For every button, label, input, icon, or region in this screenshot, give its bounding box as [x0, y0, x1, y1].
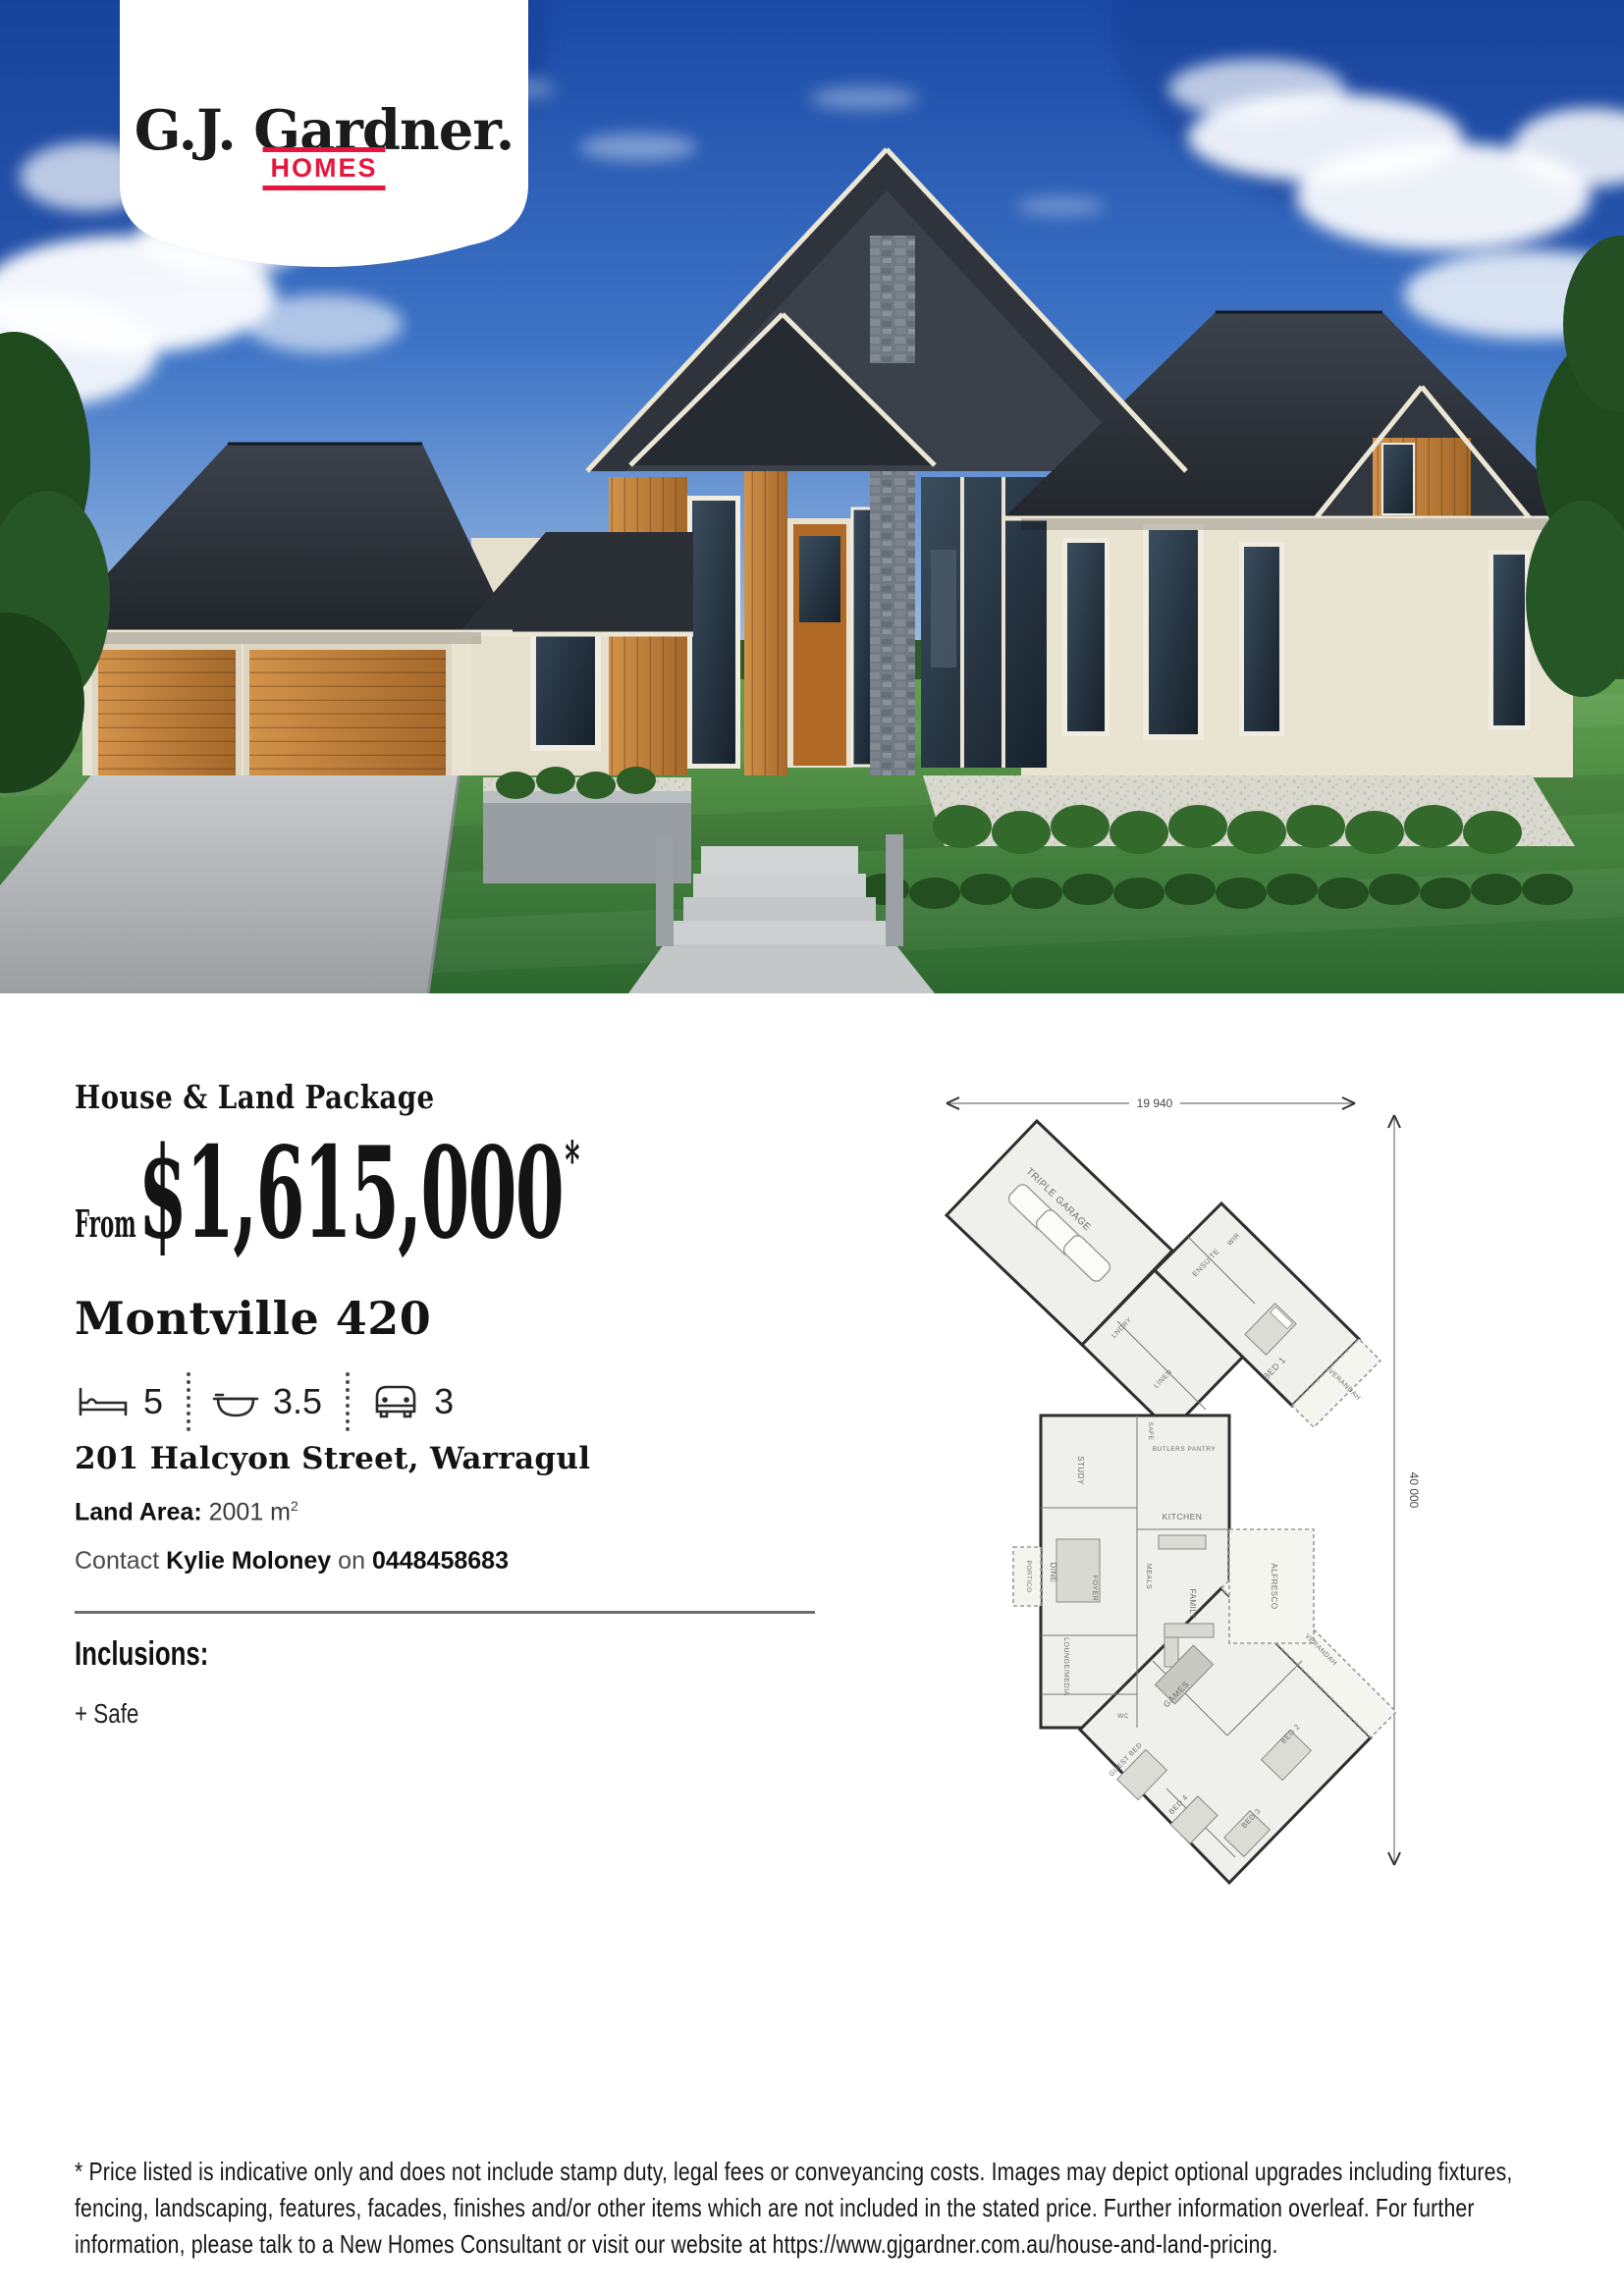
room-label: FOYER — [1091, 1575, 1098, 1602]
land-area-value: 2001 m — [209, 1498, 291, 1525]
logo-badge: G.J. Gardner. HOMES — [120, 0, 528, 293]
room-label: KITCHEN — [1163, 1512, 1203, 1522]
flyer-page: G.J. Gardner. HOMES House & Land Package… — [0, 0, 1624, 2296]
price-row: From $1,615,000 * — [75, 1131, 579, 1256]
package-heading: House & Land Package — [75, 1078, 435, 1116]
contact-phone: 0448458683 — [372, 1547, 509, 1575]
disclaimer-text: * Price listed is indicative only and do… — [75, 2154, 1539, 2263]
room-label: LOUNGE/MEDIA — [1062, 1637, 1069, 1696]
room-label: FAMILY — [1188, 1589, 1197, 1620]
bed-icon — [77, 1383, 130, 1420]
room-label: PORTICO — [1025, 1561, 1032, 1593]
floorplan: 19 940 40 000 — [931, 1086, 1424, 1887]
cars-value: 3 — [434, 1381, 454, 1422]
spec-row: 5 3.5 3 — [77, 1370, 454, 1433]
bath-icon — [212, 1383, 259, 1420]
driveway — [0, 772, 460, 993]
land-area: Land Area: 2001 m2 — [75, 1498, 298, 1526]
room-label: MEALS — [1145, 1564, 1152, 1589]
room-label: WC — [1117, 1713, 1129, 1720]
contact-prefix: Contact — [75, 1547, 159, 1575]
land-area-label: Land Area: — [75, 1498, 202, 1525]
inclusion-item: + Safe — [75, 1698, 138, 1730]
car-icon — [371, 1382, 420, 1421]
contact-connector: on — [338, 1547, 365, 1575]
inclusions-heading: Inclusions: — [75, 1635, 208, 1674]
baths-value: 3.5 — [273, 1381, 322, 1422]
spec-divider — [187, 1372, 190, 1431]
room-label: STUDY — [1076, 1456, 1085, 1485]
beds-value: 5 — [143, 1381, 163, 1422]
plan-name: Montville 420 — [75, 1292, 431, 1345]
room-label: DINE — [1049, 1562, 1057, 1582]
divider-rule — [75, 1611, 815, 1614]
room-label: SAFE — [1147, 1422, 1154, 1441]
dim-width-label: 19 940 — [1137, 1096, 1173, 1110]
price-value: $1,615,000 — [138, 1131, 563, 1256]
contact-line: Contact Kylie Moloney on 0448458683 — [75, 1547, 509, 1575]
garage-doors — [98, 650, 446, 775]
spec-divider — [346, 1372, 350, 1431]
contact-name: Kylie Moloney — [166, 1547, 331, 1575]
brand-homes-tag: HOMES — [262, 147, 385, 190]
room-label: ALFRESCO — [1270, 1563, 1278, 1609]
room-label: BUTLERS PANTRY — [1153, 1446, 1217, 1453]
property-address: 201 Halcyon Street, Warragul — [75, 1441, 590, 1476]
land-area-exponent: 2 — [291, 1498, 298, 1514]
price-asterisk: * — [565, 1131, 579, 1191]
dim-height-label: 40 000 — [1407, 1472, 1421, 1509]
price-from-label: From — [75, 1201, 136, 1246]
